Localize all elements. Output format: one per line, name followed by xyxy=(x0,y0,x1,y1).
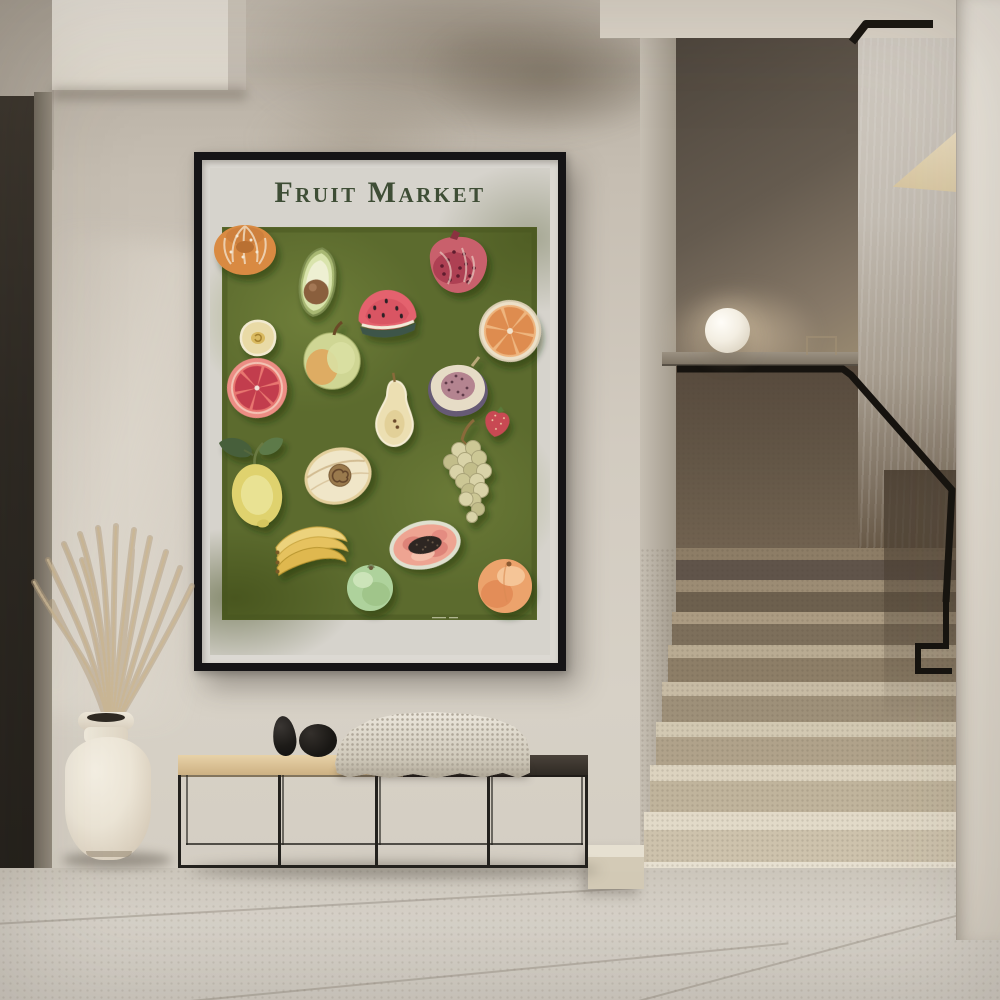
soffit-side-face xyxy=(228,0,246,90)
poster-print xyxy=(210,168,550,655)
upper-flight-handrail xyxy=(852,24,933,42)
pebble-decor-tall xyxy=(271,715,298,757)
handrail-overlay xyxy=(600,0,1000,700)
bench-back-leg xyxy=(186,775,188,845)
fruit-green-apple xyxy=(347,565,393,611)
small-stand-silhouette xyxy=(807,337,836,355)
vase-opening xyxy=(87,713,125,722)
bench-back-leg xyxy=(581,775,583,845)
stair-base-block xyxy=(588,845,644,889)
soffit-shadow xyxy=(52,88,246,100)
folded-blanket xyxy=(335,712,530,778)
bench-back-leg xyxy=(282,775,284,845)
bench-leg xyxy=(585,775,588,868)
artist-signature xyxy=(432,617,458,618)
bench-leg xyxy=(278,775,281,868)
sphere-lamp xyxy=(705,308,750,353)
hallway-scene: Fruit Market xyxy=(0,0,1000,1000)
pampas-grass xyxy=(20,520,210,740)
bench-front-rail xyxy=(178,865,588,868)
vase-body xyxy=(65,737,151,860)
bench-leg xyxy=(178,775,181,868)
pebble-decor-round xyxy=(299,724,337,757)
main-handrail xyxy=(677,369,953,491)
soffit-beam xyxy=(52,0,230,90)
handrail-end-hook xyxy=(918,600,952,671)
bench-back-leg xyxy=(491,775,493,845)
fruit-tangerine xyxy=(214,225,276,275)
floor-texture xyxy=(0,868,1000,1000)
poster-title: Fruit Market xyxy=(210,176,550,210)
bench-back-leg xyxy=(379,775,381,845)
fruit-white-peach-half xyxy=(241,321,275,355)
vase-foot-line xyxy=(86,851,132,857)
bench-back-rail xyxy=(186,843,583,845)
bench-leg xyxy=(375,775,378,868)
handrail-post xyxy=(946,489,952,602)
fruit-peach xyxy=(478,559,532,613)
bench-leg xyxy=(487,775,490,868)
